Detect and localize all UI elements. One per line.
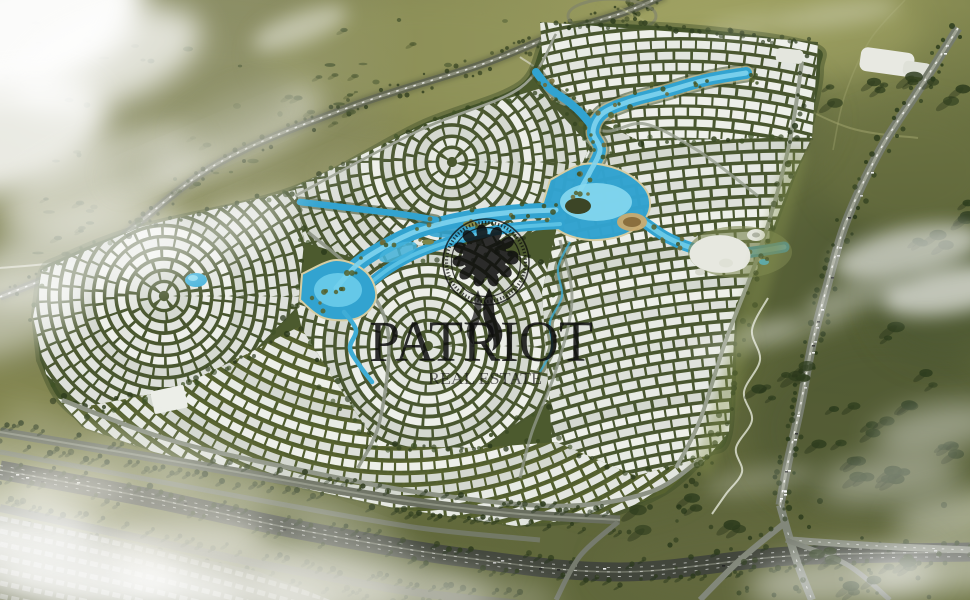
svg-text:PATRIOT: PATRIOT (369, 309, 593, 374)
svg-text:REAL ESTATE: REAL ESTATE (428, 369, 542, 388)
